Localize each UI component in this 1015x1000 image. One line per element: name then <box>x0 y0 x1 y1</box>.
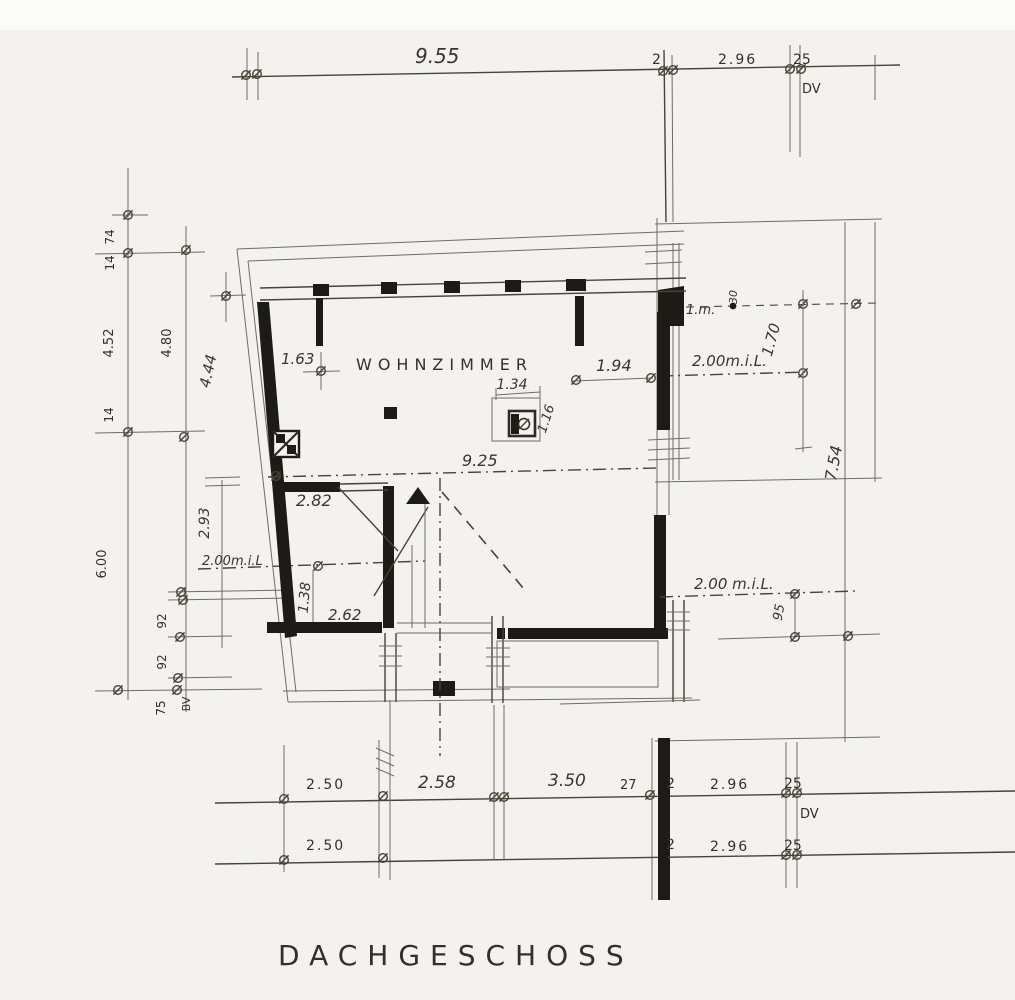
scan-margin <box>0 0 1015 30</box>
dim-2-50-row2: 2.50 <box>306 838 345 854</box>
dim-2-row1: 2 <box>666 776 675 792</box>
dim-9-55: 9.55 <box>415 44 460 68</box>
dim-6-00-left: 6.00 <box>95 550 110 579</box>
wall-post-left <box>316 298 323 346</box>
dim-2-62: 2.62 <box>328 606 361 624</box>
dim-1-16: 1.16 <box>535 403 558 435</box>
bottom-dimension-row-2: 2.50 2 2.96 25 <box>215 837 1015 865</box>
dim-92b-left: 92 <box>155 654 169 669</box>
dim-95: 95 <box>771 603 789 622</box>
wall-interior-vertical <box>383 486 394 628</box>
top-dimension-row: 9.55 2 2.96 25 DV <box>232 44 900 222</box>
drawing-title: DACHGESCHOSS <box>278 939 634 972</box>
dim-1-34: 1.34 <box>496 377 527 393</box>
dim-2-96-row2: 2.96 <box>710 839 749 855</box>
wall-bottom-left-room <box>267 622 382 633</box>
floor-plan-drawing: 9.55 2 2.96 25 DV 74 14 4.5 <box>0 0 1015 1000</box>
dim-1m-right: 1.m. <box>686 303 715 318</box>
dim-4-52-left: 4.52 <box>102 329 117 358</box>
scanned-floor-plan-page: 9.55 2 2.96 25 DV 74 14 4.5 <box>0 0 1015 1000</box>
dim-14a-left: 14 <box>103 255 117 270</box>
dim-1-70-right: 1.70 <box>758 321 784 358</box>
annex-outline: 1.m. 30 2.00m.i.L. 1.70 7.54 <box>645 218 882 742</box>
left-dimension-column: 74 14 4.52 4.80 14 4.44 2.93 2.00m.i.L 6… <box>95 168 425 716</box>
wall-post-right <box>575 296 584 346</box>
dim-74-left: 74 <box>103 229 117 244</box>
dim-25-top: 25 <box>793 52 811 68</box>
dim-1-38: 1.38 <box>296 581 315 614</box>
dim-30-right: 30 <box>727 290 740 304</box>
skylight <box>492 386 540 441</box>
dim-14b-left: 14 <box>102 407 116 422</box>
dim-75-left: 75 <box>154 700 168 715</box>
right-lower-annotations: 2.00 m.i.L. 95 <box>560 575 880 741</box>
dim-2-58-row1: 2.58 <box>418 773 456 793</box>
dim-27-row1: 27 <box>620 778 637 793</box>
dim-mil-bottom-right: 2.00 m.i.L. <box>694 575 774 593</box>
grid-axis-thick <box>658 738 670 900</box>
window-symbols <box>379 600 690 703</box>
dim-2-top: 2 <box>652 52 661 68</box>
dim-7-54-right: 7.54 <box>821 444 846 482</box>
dim-2-82: 2.82 <box>296 491 332 510</box>
dim-92a-left: 92 <box>155 613 169 628</box>
room-label-wohnzimmer: WOHNZIMMER <box>356 355 533 374</box>
label-dv-row1: DV <box>800 807 819 822</box>
dim-2-96-row1: 2.96 <box>710 777 749 793</box>
dim-3-50-row1: 3.50 <box>548 771 586 791</box>
dim-9-25: 9.25 <box>462 451 498 470</box>
dim-1-63: 1.63 <box>281 350 314 368</box>
label-dv-top: DV <box>802 82 821 97</box>
column-square <box>384 407 397 419</box>
dim-25-row1: 25 <box>784 776 802 792</box>
bottom-dimension-row-1: 2.50 2.58 3.50 27 2 2.96 25 DV <box>215 700 1015 900</box>
dim-4-44-wall: 4.44 <box>196 353 221 389</box>
dim-mil-top-right: 2.00m.i.L. <box>692 352 767 370</box>
dim-2-96-top: 2.96 <box>718 52 757 68</box>
dim-25-row2: 25 <box>784 838 802 854</box>
dim-1-94: 1.94 <box>596 356 632 375</box>
stair-and-roof-lines <box>338 478 524 756</box>
stair-direction-arrow <box>406 487 430 504</box>
wall-bottom-right <box>508 628 668 639</box>
dim-4-80-left: 4.80 <box>160 329 175 358</box>
chimney-hatched <box>273 431 299 457</box>
dim-2-50-row1: 2.50 <box>306 777 345 793</box>
wall-right-upper <box>657 312 670 430</box>
dim-2-93-left: 2.93 <box>197 507 213 538</box>
dim-2-row2: 2 <box>666 837 675 853</box>
label-bv-left: BV <box>180 696 193 711</box>
wall-right-lower <box>654 515 666 639</box>
